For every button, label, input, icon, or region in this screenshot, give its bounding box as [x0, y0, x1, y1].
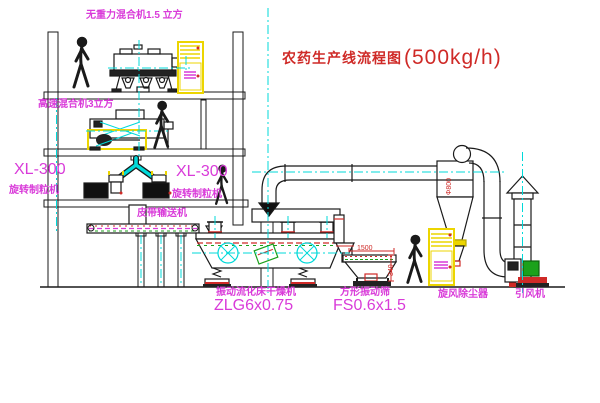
cad-canvas: 农药生产线流程图 (500kg/h) 无重力混合机1.5 立方 高速混合机3立方… — [0, 0, 600, 403]
label-fan: 引风机 — [515, 290, 545, 300]
operator-ground-floor — [408, 235, 421, 282]
belt-conveyor — [87, 224, 199, 233]
label-dryer-model: ZLG6x0.75 — [214, 298, 293, 314]
exhaust-hood-duct — [252, 164, 437, 222]
label-granulator-left-model: XL-300 — [14, 162, 66, 178]
title-text: 农药生产线流程图 — [282, 48, 402, 68]
label-granulator-mid-name: 旋转制粒机 — [172, 190, 222, 200]
label-high-speed-mixer: 高速混合机3立方 — [38, 100, 114, 110]
title-capacity: (500kg/h) — [404, 46, 502, 70]
dryer-spring-feet — [203, 268, 317, 287]
operator-top-floor — [74, 38, 88, 88]
dim-cyclone-diameter: Ф800 — [446, 178, 453, 195]
label-granulator-left-name: 旋转制粒机 — [9, 186, 59, 196]
dim-screen-height: 340 — [388, 264, 395, 276]
label-granulator-mid-model: XL-300 — [176, 164, 228, 180]
fluid-bed-dryer — [196, 222, 352, 287]
control-cabinet-ground — [429, 229, 454, 285]
drawing-title: 农药生产线流程图 (500kg/h) — [282, 46, 502, 70]
label-gravity-free-mixer: 无重力混合机1.5 立方 — [86, 11, 183, 21]
operator-middle-floor — [155, 101, 168, 147]
label-cyclone: 旋风除尘器 — [438, 290, 488, 300]
label-screen-model: FS0.6x1.5 — [333, 298, 406, 314]
dim-screen-length: 1500 — [357, 245, 373, 252]
granulator-units — [84, 171, 172, 198]
label-belt-conveyor: 皮带输送机 — [137, 209, 187, 219]
